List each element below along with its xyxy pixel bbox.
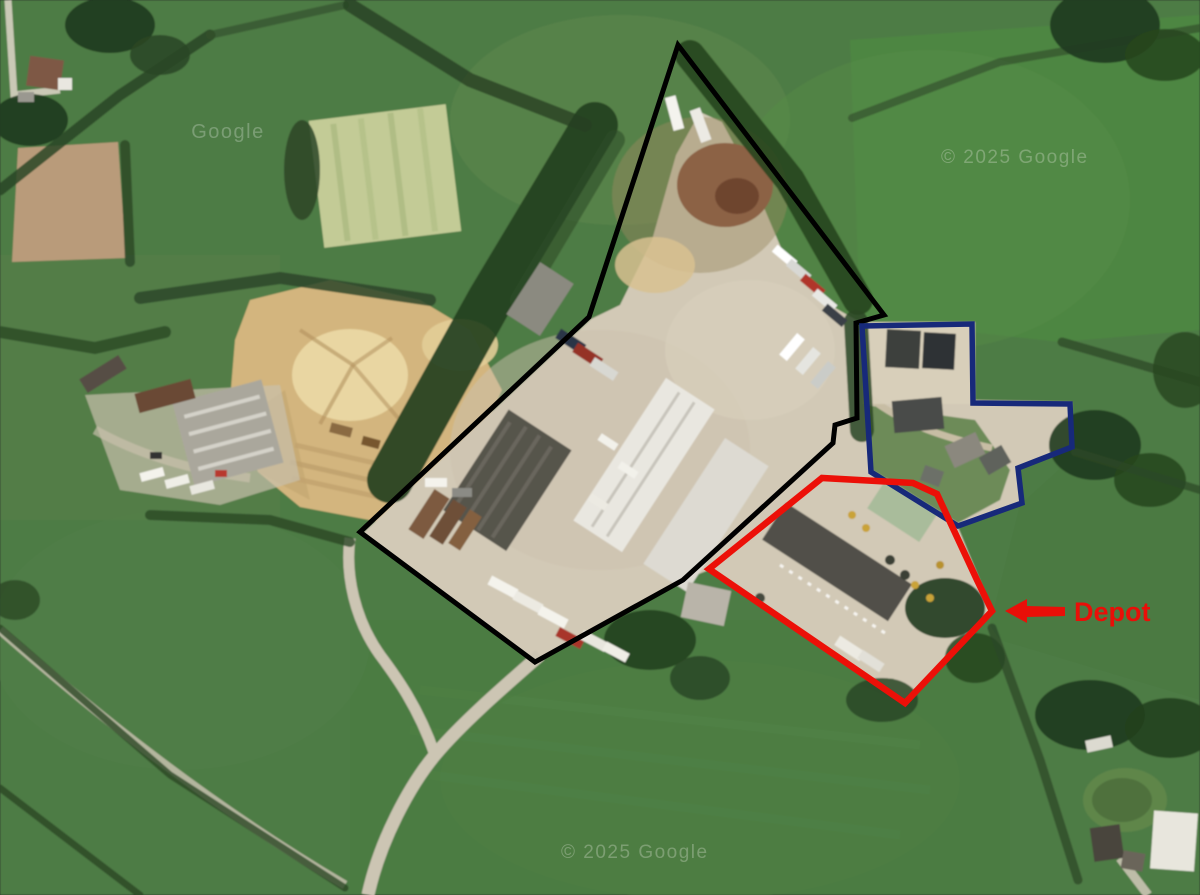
watermark-copyright-bottom: © 2025 Google — [561, 842, 709, 863]
satellite-imagery — [0, 0, 1200, 895]
depot-label: Depot — [1074, 597, 1151, 627]
watermark-google-top-left: Google — [191, 121, 265, 143]
map-canvas: Google © 2025 Google © 2025 Google Depot — [0, 0, 1200, 895]
watermark-copyright-top-right: © 2025 Google — [941, 147, 1089, 168]
annotated-satellite-map: Google © 2025 Google © 2025 Google Depot — [0, 0, 1200, 895]
